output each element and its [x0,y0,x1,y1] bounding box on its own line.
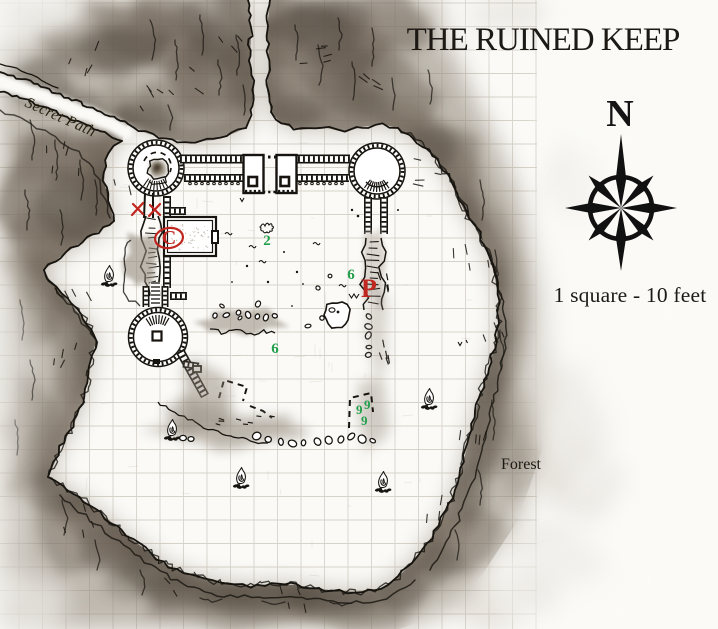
svg-text:9: 9 [361,413,368,428]
svg-text:2: 2 [263,233,271,249]
svg-text:Forest: Forest [501,456,542,473]
svg-text:6: 6 [347,267,355,283]
svg-text:P: P [361,274,377,303]
svg-text:9: 9 [364,397,371,412]
svg-text:1 square - 10 feet: 1 square - 10 feet [554,283,707,307]
svg-text:6: 6 [271,341,279,357]
svg-text:N: N [606,93,633,135]
svg-text:THE RUINED KEEP: THE RUINED KEEP [407,22,680,58]
svg-text:C: C [162,227,176,249]
